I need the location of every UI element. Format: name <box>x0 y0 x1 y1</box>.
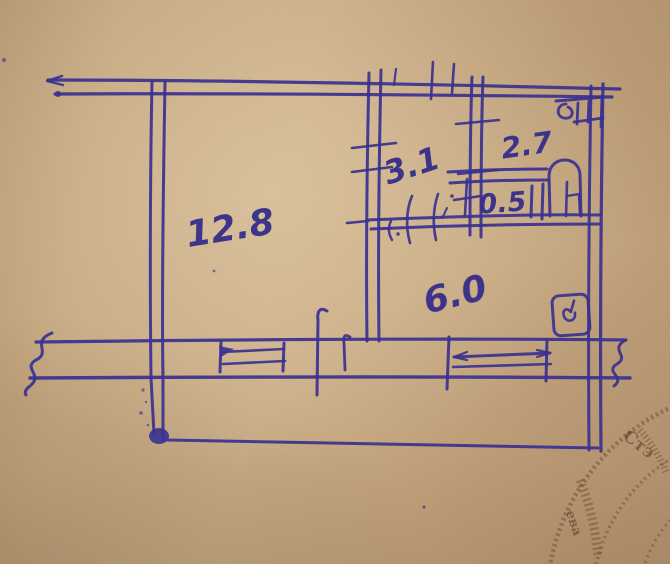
bathroom-area-label: 2.7 <box>499 125 555 166</box>
cardboard-photo: 12.8 3.1 2.7 0.5 6.0 Стэ ева <box>0 0 670 564</box>
closet-depth-label: 0.5 <box>477 186 527 220</box>
paper-grain-texture <box>0 0 670 564</box>
floor-plan-drawing: 12.8 3.1 2.7 0.5 6.0 Стэ ева <box>0 0 670 564</box>
